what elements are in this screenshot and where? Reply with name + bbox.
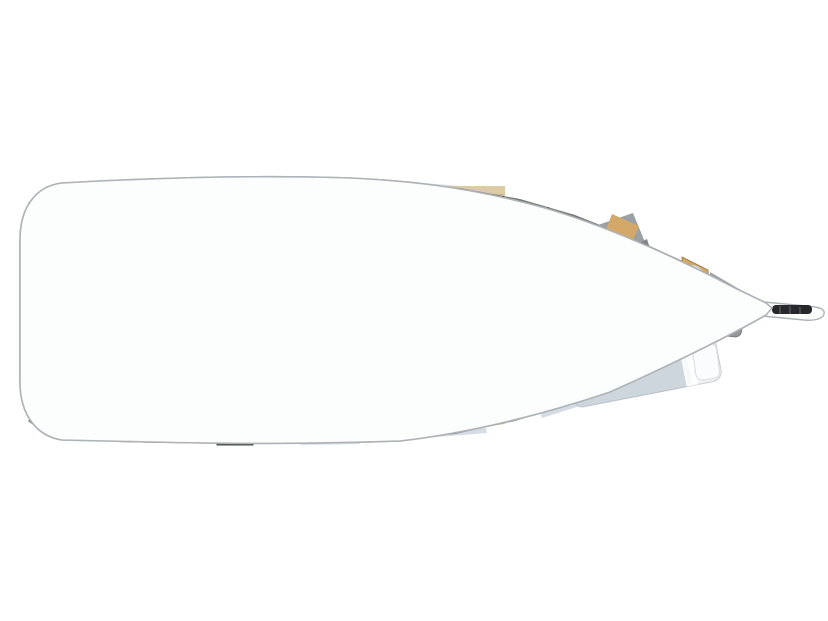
hull-outline-top xyxy=(20,177,772,444)
floorplan-stage: Sailboat interior layout plan (top view,… xyxy=(0,0,828,621)
boat-floorplan: Sailboat interior layout plan (top view,… xyxy=(0,0,828,621)
anchor-roller xyxy=(772,305,812,314)
